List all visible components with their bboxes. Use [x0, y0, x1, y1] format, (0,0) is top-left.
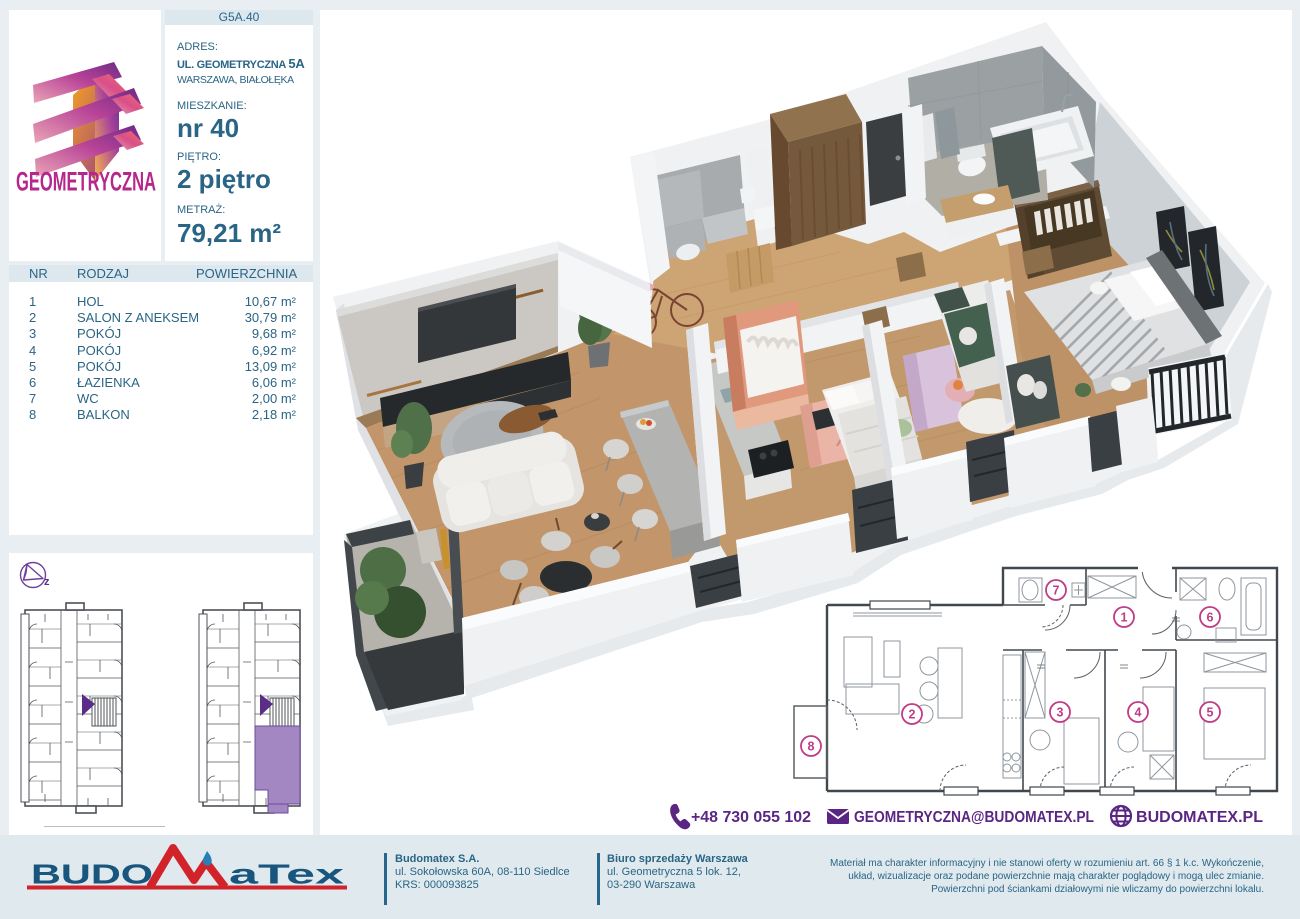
- svg-text:3: 3: [1057, 706, 1064, 720]
- svg-text:2: 2: [909, 708, 916, 722]
- svg-text:z: z: [44, 576, 50, 588]
- svg-text:+48 730 055 102: +48 730 055 102: [691, 809, 811, 826]
- svg-text:6: 6: [1207, 611, 1214, 625]
- svg-text:GEOMETRYCZNA: GEOMETRYCZNA: [16, 166, 156, 196]
- svg-text:4: 4: [1135, 706, 1142, 720]
- svg-text:BUDOMATEX.PL: BUDOMATEX.PL: [1136, 809, 1263, 826]
- svg-text:aTex: aTex: [229, 859, 345, 890]
- svg-text:5: 5: [1207, 706, 1214, 720]
- svg-text:GEOMETRYCZNA@BUDOMATEX.PL: GEOMETRYCZNA@BUDOMATEX.PL: [854, 809, 1094, 826]
- svg-text:8: 8: [808, 740, 815, 754]
- svg-text:7: 7: [1053, 584, 1060, 598]
- svg-text:BUDO: BUDO: [31, 859, 153, 890]
- svg-text:1: 1: [1121, 611, 1128, 625]
